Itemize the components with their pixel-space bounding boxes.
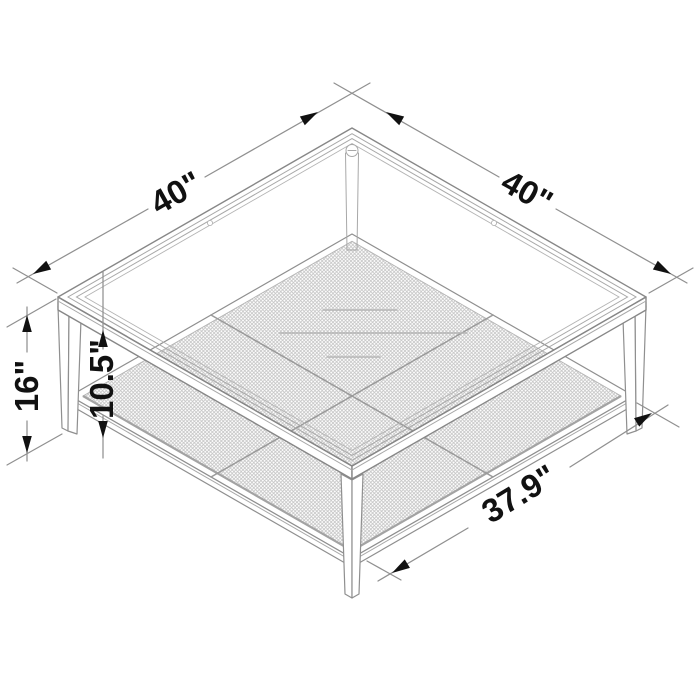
- arrowhead-up-right: [300, 108, 321, 126]
- extension-line-right: [637, 403, 679, 427]
- front-leg: [341, 474, 363, 598]
- arrowhead-down-left: [31, 261, 52, 279]
- dimension-label-shelf-clearance: 10.5": [83, 339, 120, 419]
- dimension-overall-height: 16": [7, 299, 62, 465]
- extension-line-bottom: [7, 434, 62, 465]
- dimension-label-overall-height: 16": [8, 360, 45, 412]
- dimension-label-top-width: 40": [144, 164, 208, 222]
- edge-screw-left-icon: [207, 220, 212, 225]
- extension-line: [13, 268, 57, 293]
- product-dimension-diagram: 40" 40" 16" 10.5" 37.9": [0, 0, 700, 700]
- edge-screw-right-icon: [491, 220, 496, 225]
- extension-line: [649, 268, 693, 293]
- extension-line-top: [7, 299, 56, 327]
- right-leg: [623, 306, 646, 434]
- left-leg: [58, 306, 81, 434]
- arrowhead-down-right: [653, 261, 674, 279]
- arrowhead-up-left: [384, 108, 405, 126]
- arrowhead-down: [22, 436, 32, 453]
- dimension-label-top-depth: 40": [495, 163, 559, 221]
- coffee-table-isometric-drawing: 40" 40" 16" 10.5" 37.9": [0, 0, 700, 700]
- arrowhead-down: [98, 421, 108, 438]
